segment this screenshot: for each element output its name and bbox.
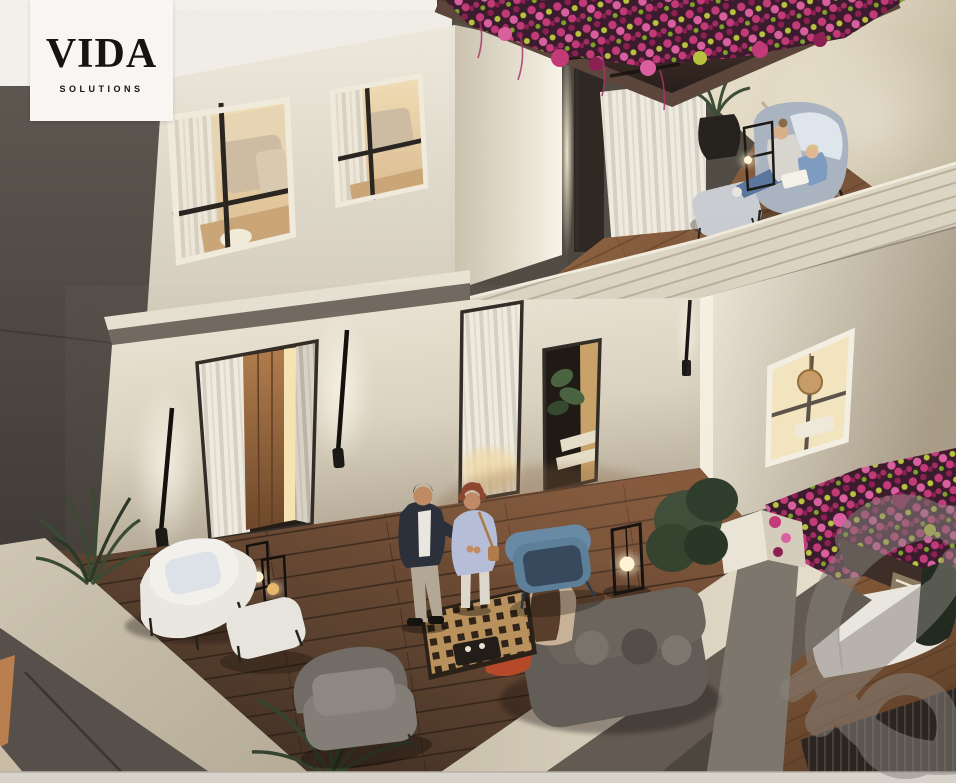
round-mirror [798, 370, 822, 394]
corner-column [455, 25, 562, 290]
logo-card: VIDA SOLUTIONS [30, 0, 173, 121]
solutions-label: SOLUTIONS [59, 84, 143, 94]
living-room-window-2 [332, 76, 426, 205]
terrace-curtains [600, 80, 706, 248]
open-wood-door [243, 349, 287, 530]
white-shirt [418, 510, 431, 557]
plant-pot [698, 114, 740, 160]
bottom-slab-strip [0, 772, 956, 783]
living-room-window-1 [170, 100, 293, 262]
terrace-door-1 [197, 341, 317, 540]
vida-wordmark: VIDA [46, 33, 157, 75]
shoulder-bag [488, 546, 499, 561]
architectural-rendering: VIDA SOLUTIONS [0, 0, 956, 783]
lit-wall-edge [560, 48, 574, 257]
